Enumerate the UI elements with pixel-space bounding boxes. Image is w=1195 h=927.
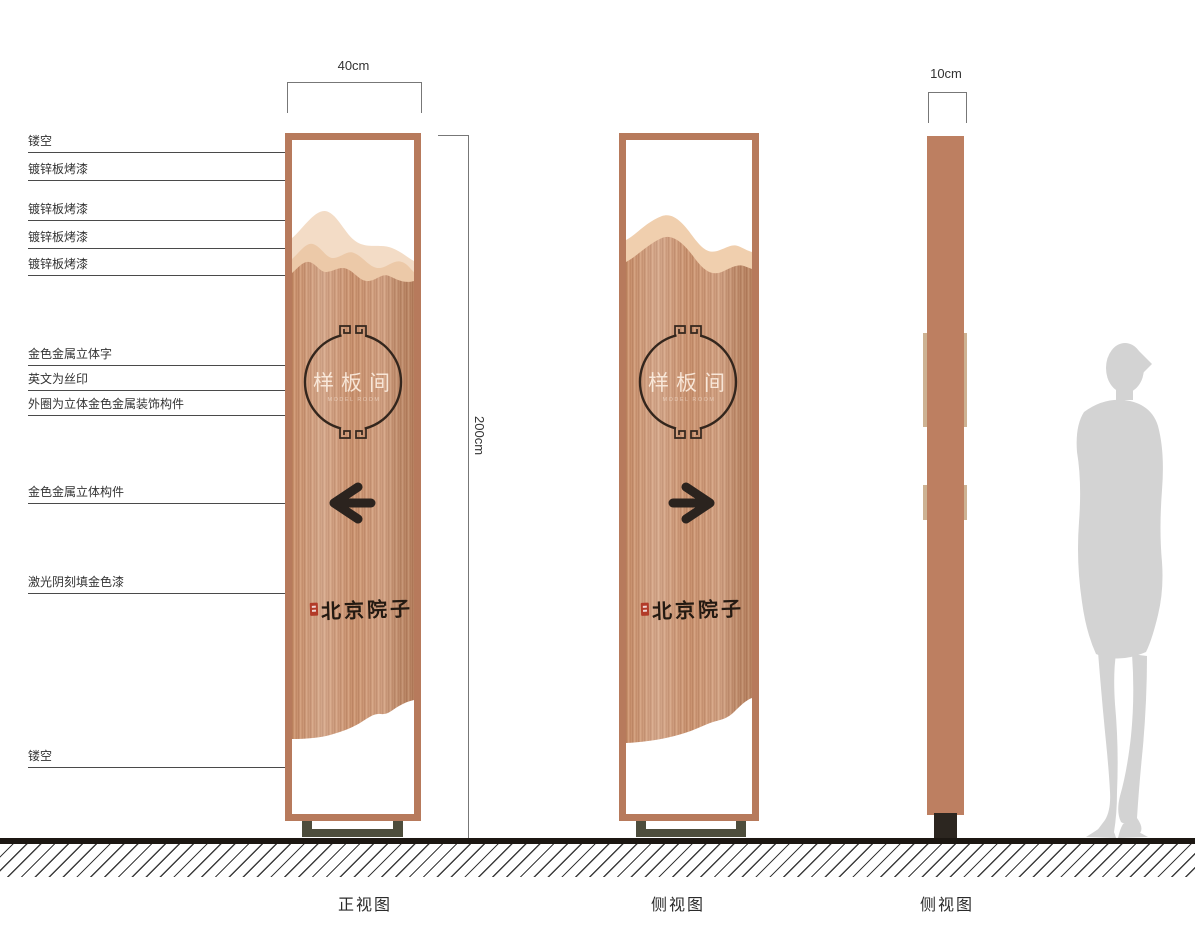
seal-icon xyxy=(641,603,649,616)
annotation-label: 激光阴刻填金色漆 xyxy=(28,575,124,589)
annotation-galvanized-3: 镀锌板烤漆 xyxy=(28,230,293,249)
view-label-front: 正视图 xyxy=(305,891,425,915)
brand-text: 北京院子 xyxy=(321,596,414,623)
annotation-galvanized-2: 镀锌板烤漆 xyxy=(28,202,318,221)
annotation-outer-ring: 外圈为立体金色金属装饰构件 xyxy=(28,397,315,416)
profile-post-base xyxy=(934,813,957,839)
annotation-label: 金色金属立体构件 xyxy=(28,485,124,499)
dimension-bracket-side xyxy=(928,92,967,123)
ground-hatch xyxy=(0,844,1195,877)
dimension-side-width: 10cm xyxy=(916,66,976,81)
silhouette-leg-right xyxy=(1118,654,1147,833)
side-post-base-bar xyxy=(636,829,746,837)
annotation-label: 镂空 xyxy=(28,134,52,148)
front-view-post-artwork: 样板间 MODEL ROOM 北京院子 xyxy=(292,140,414,814)
annotation-galvanized-4: 镀锌板烤漆 xyxy=(28,257,293,276)
annotation-galvanized-1: 镀锌板烤漆 xyxy=(28,162,285,181)
brand-text: 北京院子 xyxy=(652,596,745,623)
silhouette-leg-left xyxy=(1096,652,1118,835)
annotation-label: 镂空 xyxy=(28,749,52,763)
side-view-post-artwork: 样板间 MODEL ROOM 北京院子 xyxy=(626,140,752,814)
panel-title: 样板间 xyxy=(648,372,732,395)
annotation-hollow-top: 镂空 xyxy=(28,134,307,153)
side-view-post-frame: 样板间 MODEL ROOM 北京院子 xyxy=(619,133,759,821)
annotation-hollow-bottom: 镂空 xyxy=(28,749,300,768)
annotation-label: 英文为丝印 xyxy=(28,372,88,386)
view-label-side2: 侧视图 xyxy=(887,891,1007,915)
annotation-gold-3d-letters: 金色金属立体字 xyxy=(28,347,322,366)
silhouette-foot-left xyxy=(1086,826,1116,838)
silhouette-hair xyxy=(1136,348,1152,378)
profile-post-body xyxy=(927,136,964,815)
panel-title: 样板间 xyxy=(313,372,397,395)
dimension-height-tick xyxy=(438,135,468,136)
dimension-height: 200cm xyxy=(472,416,487,455)
dimension-bracket-front xyxy=(287,82,422,113)
brand-logo: 北京院子 xyxy=(641,596,745,624)
brand-logo: 北京院子 xyxy=(310,596,414,624)
annotation-label: 镀锌板烤漆 xyxy=(28,230,88,244)
annotation-label: 镀锌板烤漆 xyxy=(28,202,88,216)
silhouette-torso xyxy=(1077,400,1163,659)
dimension-height-line xyxy=(468,135,469,839)
human-scale-silhouette xyxy=(1046,340,1174,840)
dimension-front-width: 40cm xyxy=(287,58,420,73)
front-view-post-frame: 样板间 MODEL ROOM 北京院子 xyxy=(285,133,421,821)
design-drawing-canvas: 镂空 镀锌板烤漆 镀锌板烤漆 镀锌板烤漆 镀锌板烤漆 金色金属立体字 英文为丝印… xyxy=(0,0,1195,927)
annotation-label: 外圈为立体金色金属装饰构件 xyxy=(28,397,184,411)
annotation-label: 金色金属立体字 xyxy=(28,347,112,361)
view-label-side: 侧视图 xyxy=(618,891,738,915)
seal-icon xyxy=(310,603,318,616)
annotation-label: 镀锌板烤漆 xyxy=(28,162,88,176)
front-post-base-bar xyxy=(302,829,403,837)
panel-subtitle: MODEL ROOM xyxy=(663,397,716,403)
panel-subtitle: MODEL ROOM xyxy=(328,397,381,403)
annotation-label: 镀锌板烤漆 xyxy=(28,257,88,271)
